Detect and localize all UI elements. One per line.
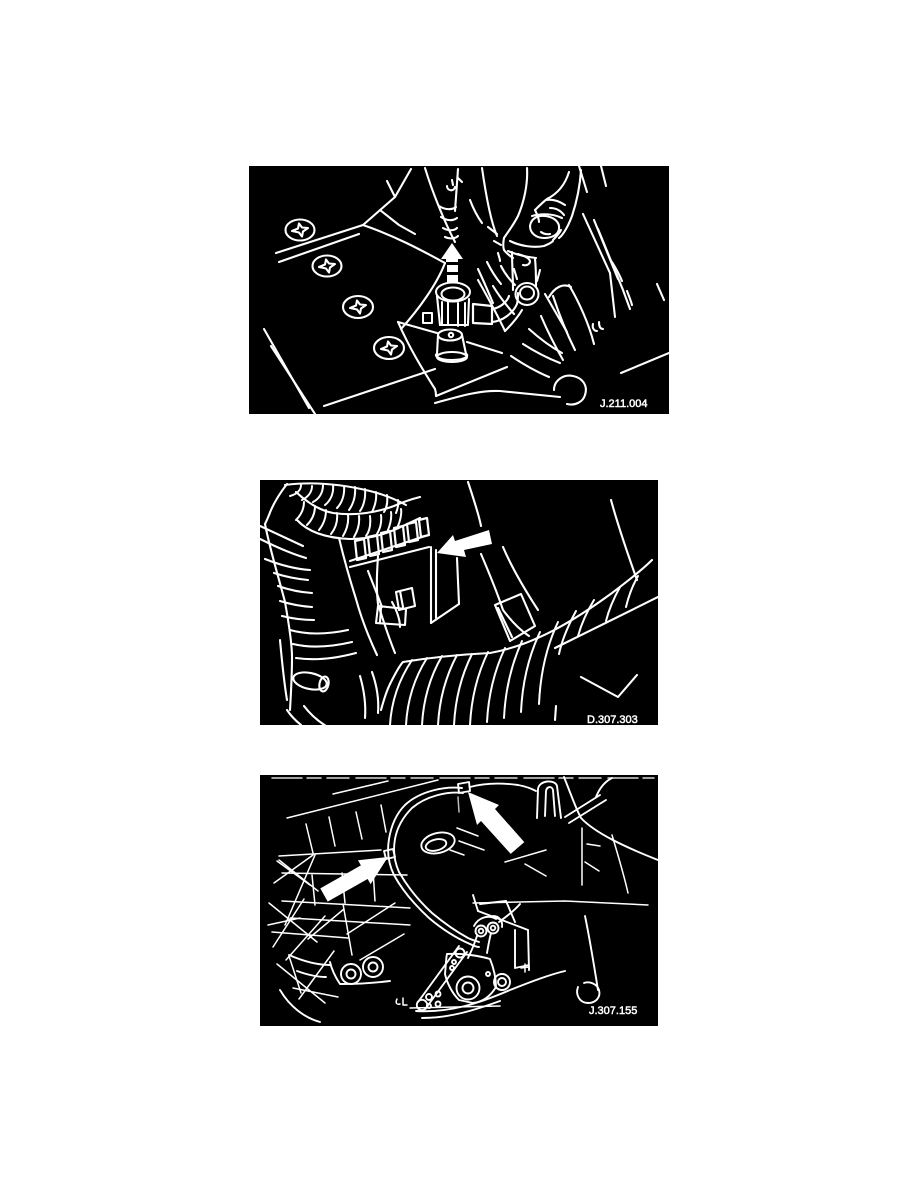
- svg-text:J.307.155: J.307.155: [589, 1005, 637, 1017]
- svg-text:D.307.303: D.307.303: [587, 714, 638, 725]
- svg-text:J.211.004: J.211.004: [600, 398, 648, 410]
